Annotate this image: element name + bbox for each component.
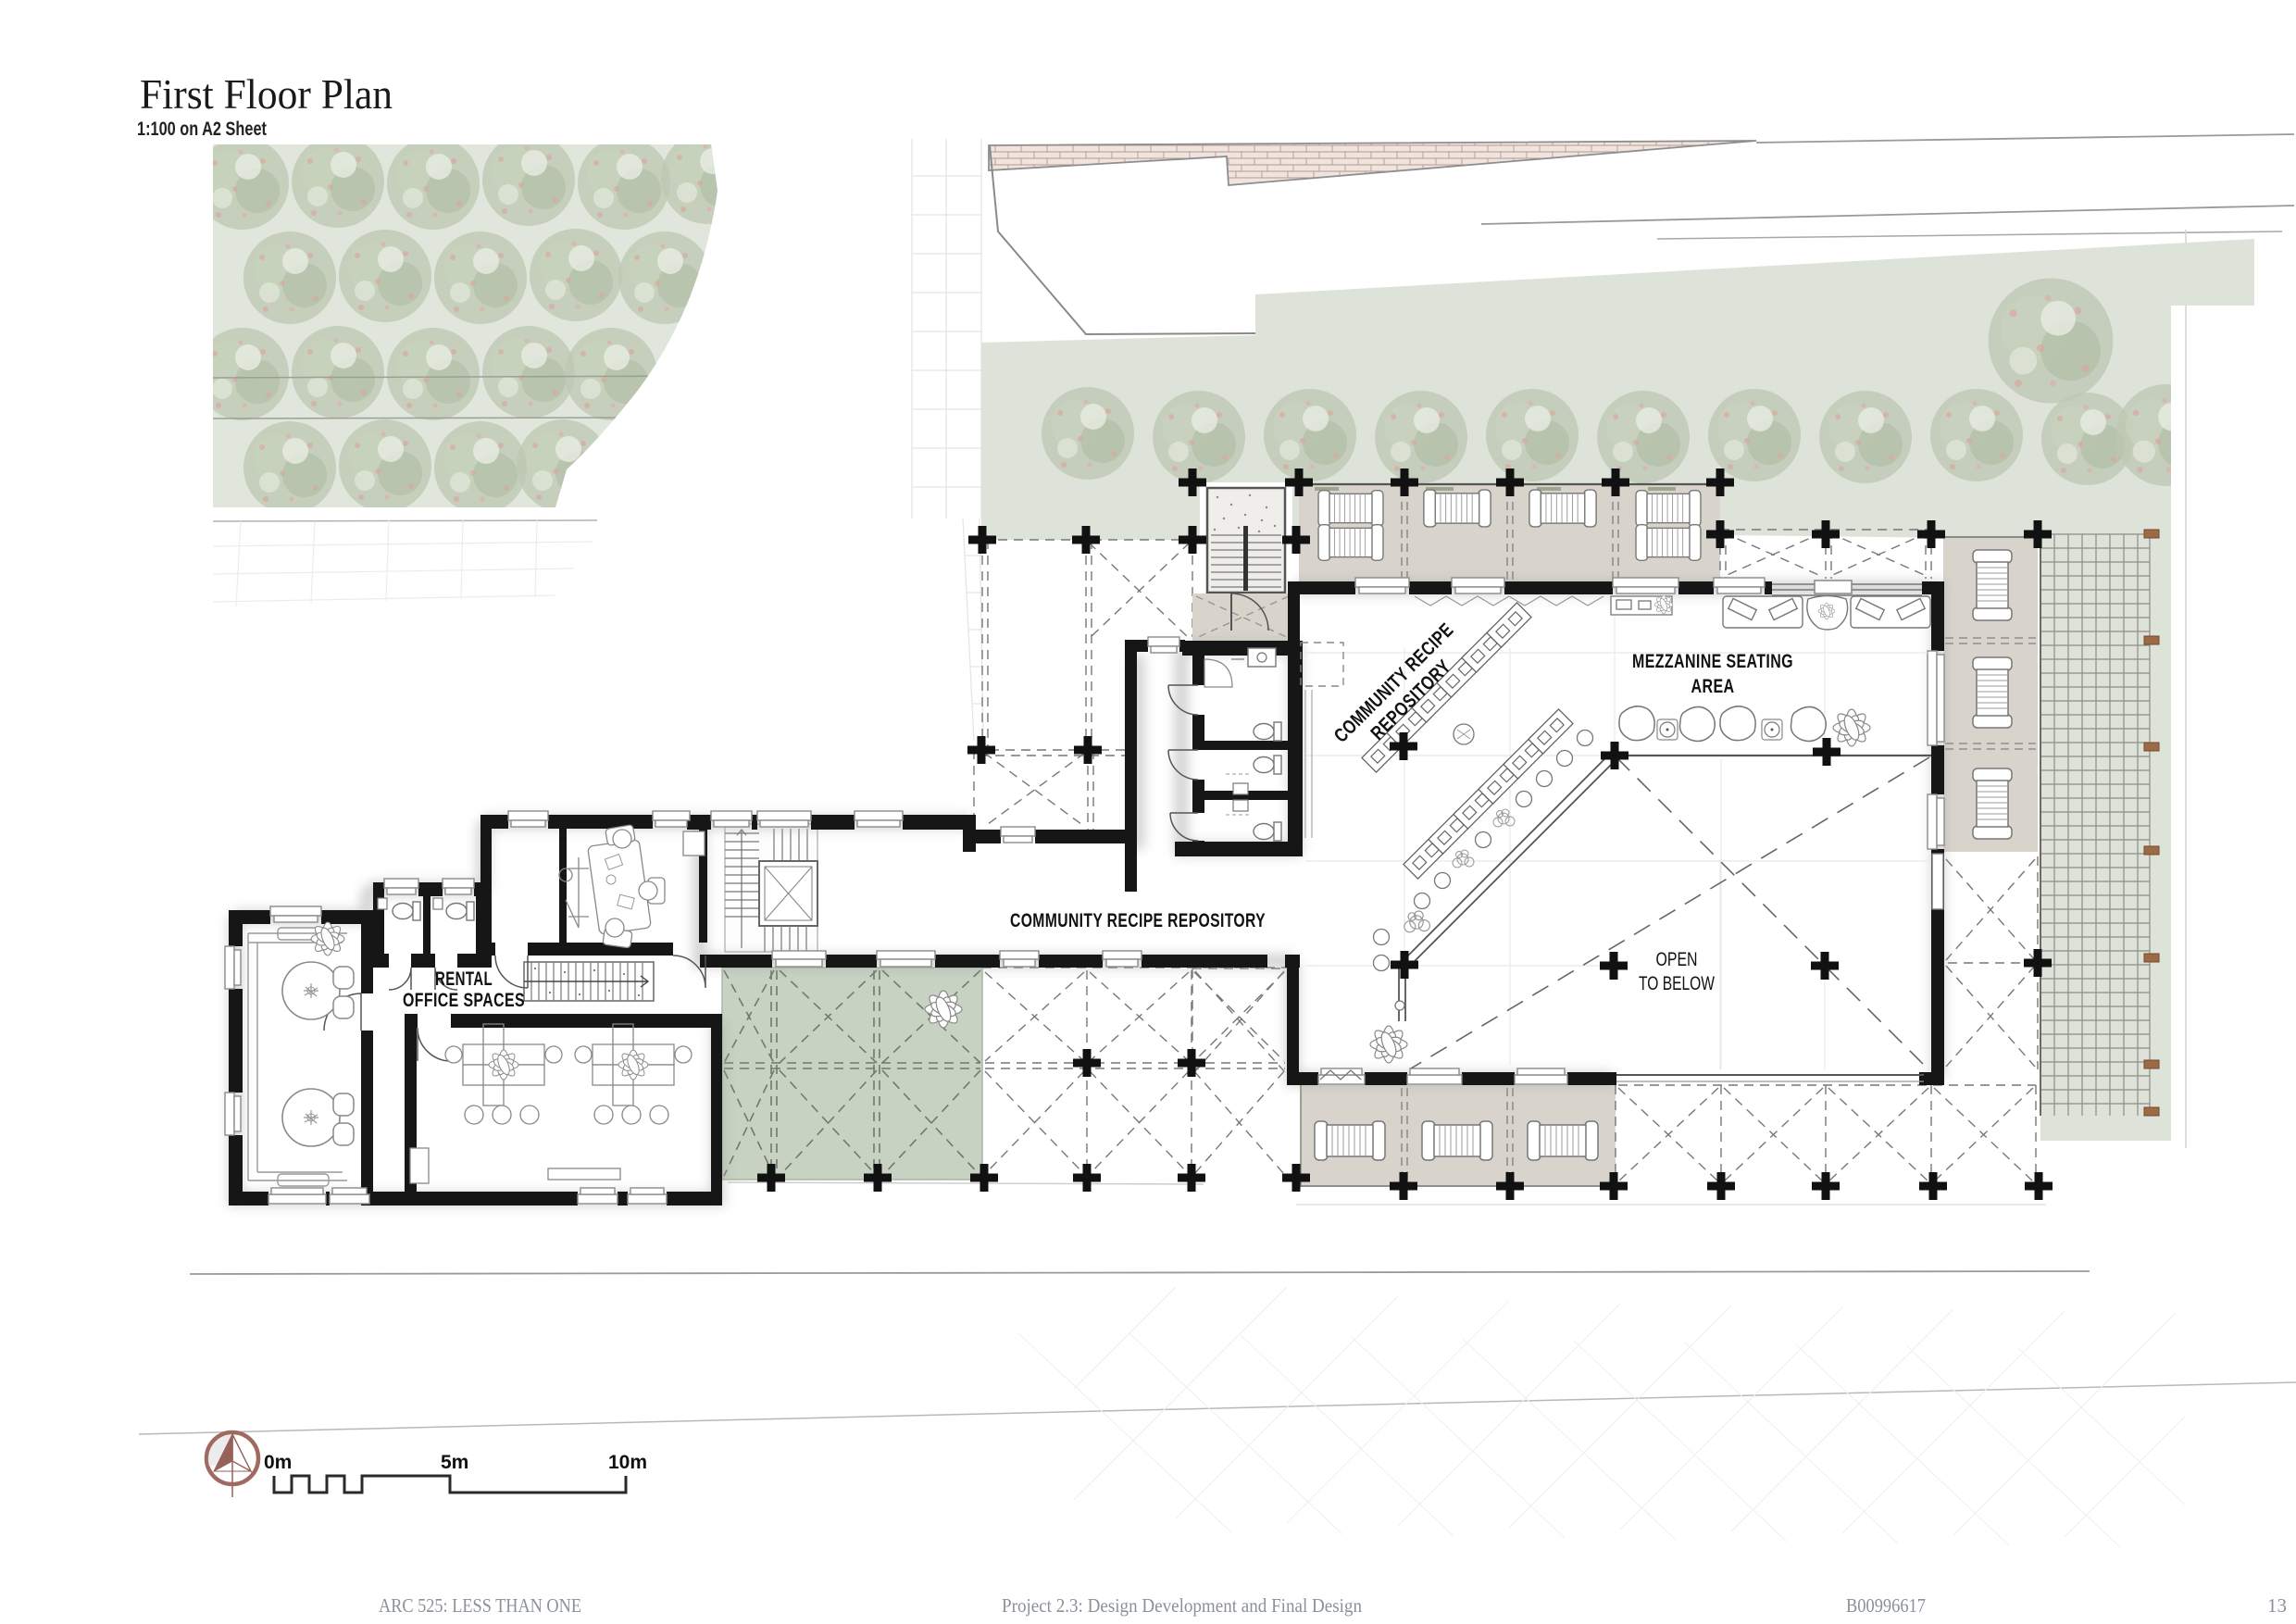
svg-text:5m: 5m bbox=[441, 1452, 468, 1473]
svg-text:1:100 on A2 Sheet: 1:100 on A2 Sheet bbox=[137, 119, 267, 140]
svg-text:COMMUNITY RECIPE REPOSITORY: COMMUNITY RECIPE REPOSITORY bbox=[1010, 910, 1266, 931]
svg-text:B00996617: B00996617 bbox=[1846, 1594, 1926, 1617]
svg-text:13: 13 bbox=[2267, 1594, 2287, 1617]
svg-text:OFFICE SPACES: OFFICE SPACES bbox=[403, 990, 525, 1011]
svg-text:AREA: AREA bbox=[1691, 676, 1735, 697]
svg-text:0m: 0m bbox=[264, 1452, 292, 1473]
svg-text:MEZZANINE SEATING: MEZZANINE SEATING bbox=[1632, 651, 1793, 672]
svg-text:OPEN: OPEN bbox=[1656, 949, 1698, 970]
svg-text:ARC 525: LESS THAN ONE: ARC 525: LESS THAN ONE bbox=[379, 1594, 581, 1617]
svg-text:RENTAL: RENTAL bbox=[435, 968, 493, 990]
svg-text:TO BELOW: TO BELOW bbox=[1639, 973, 1715, 994]
svg-text:10m: 10m bbox=[608, 1452, 647, 1473]
svg-text:Project 2.3: Design Developmen: Project 2.3: Design Development and Fina… bbox=[1002, 1594, 1362, 1617]
svg-text:First Floor Plan: First Floor Plan bbox=[140, 70, 393, 118]
